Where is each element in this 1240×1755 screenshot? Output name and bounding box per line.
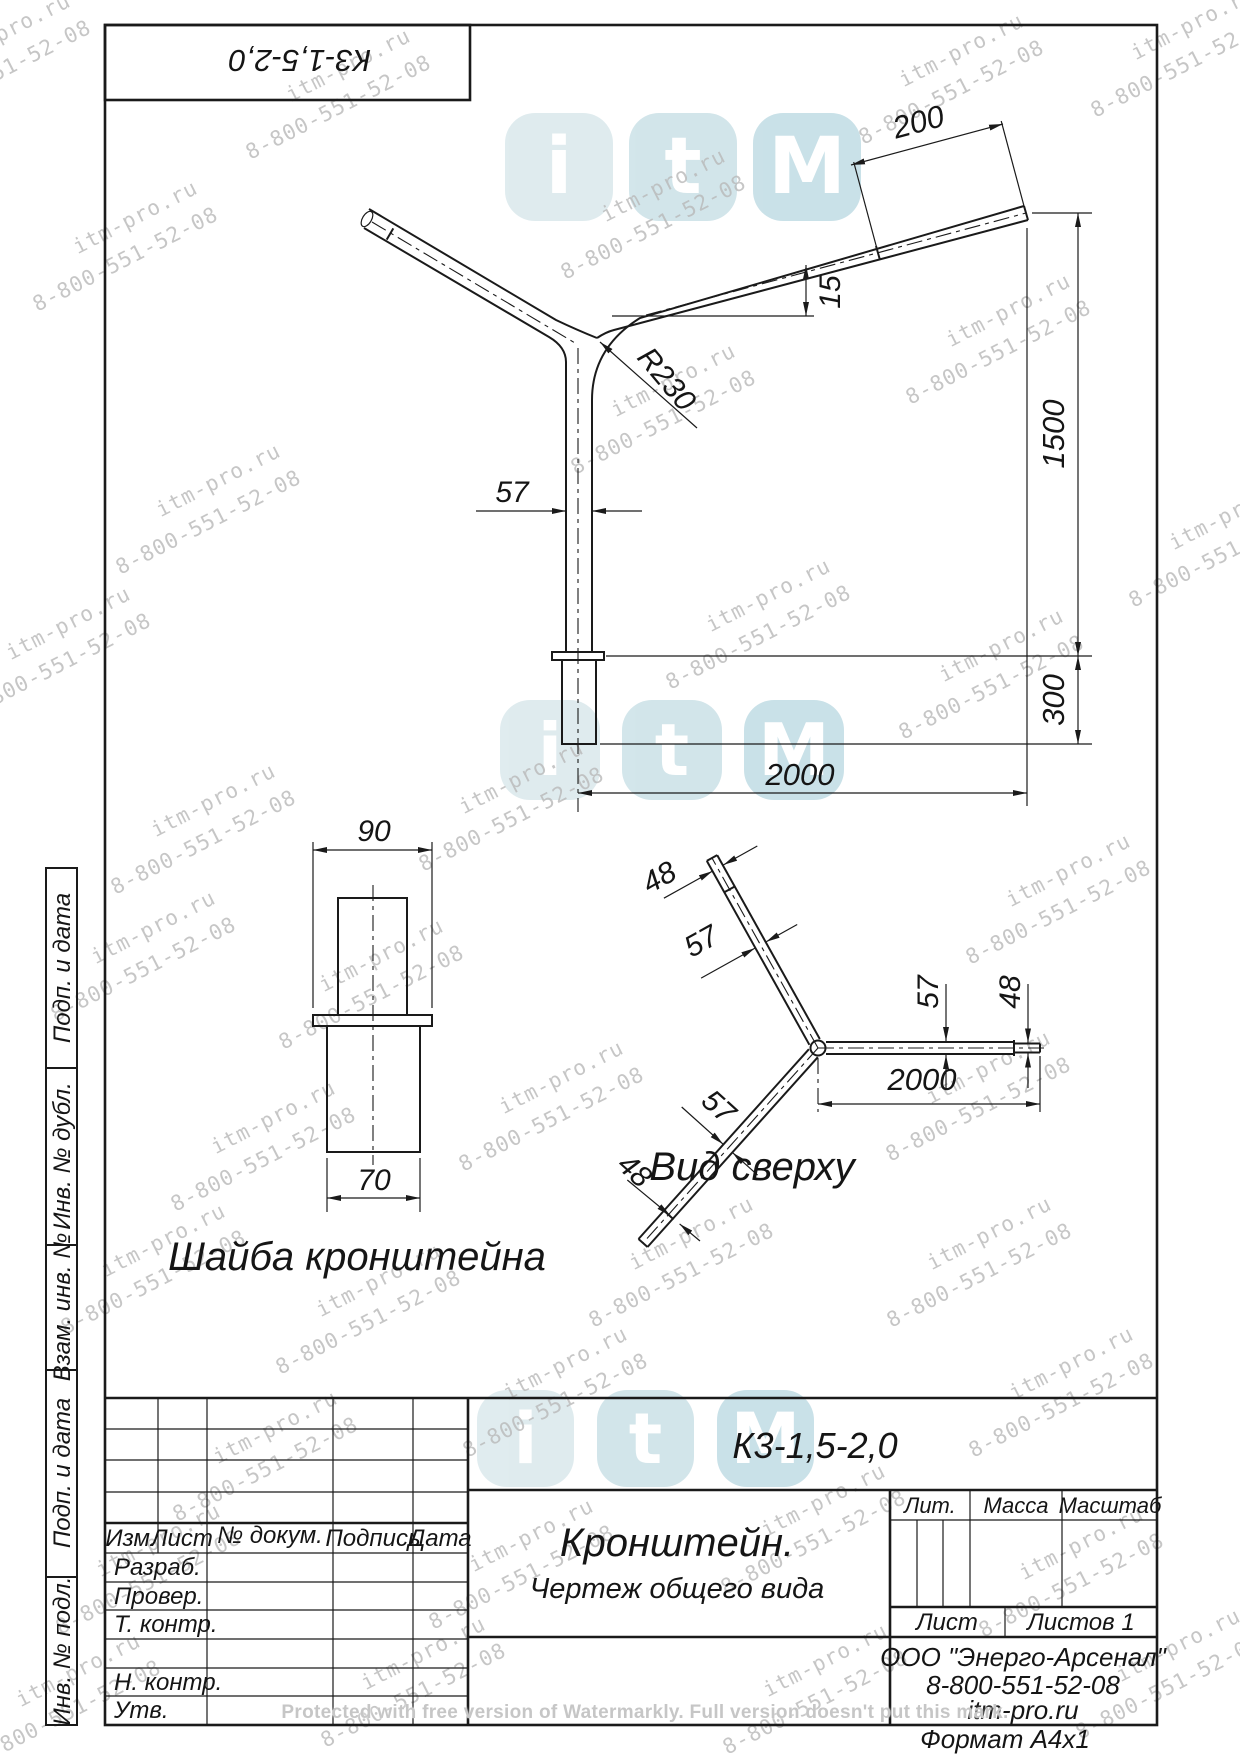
bracket-left-edge [364, 228, 566, 652]
top-view: 48 57 57 48 2000 57 48 Вид сверх [611, 846, 1046, 1247]
dim-1500: 1500 [1036, 400, 1071, 469]
corner-stamp-text: К3-1,5-2,0 [229, 43, 371, 78]
masshtab-label: Масштаб [1059, 1493, 1163, 1518]
list-label: Лист [914, 1609, 978, 1636]
washer-view: 90 70 Шайба кронштейна [168, 815, 546, 1279]
side-cell-label: Подп. и дата [49, 1398, 76, 1548]
corner-stamp: К3-1,5-2,0 [105, 25, 470, 100]
designation: К3-1,5-2,0 [732, 1425, 897, 1466]
dim-48-right: 48 [994, 975, 1027, 1009]
part-name: Кронштейн. [560, 1521, 794, 1565]
front-view: R230 200 15 1500 300 2000 57 [359, 98, 1092, 812]
top-view-caption: Вид сверху [649, 1145, 857, 1189]
bracket-right-arm-bottom-edge [597, 220, 1028, 338]
technical-drawing: К3-1,5-2,0 R230 20 [0, 0, 1240, 1755]
washer-caption: Шайба кронштейна [168, 1235, 546, 1279]
ext-line [854, 162, 877, 247]
dim-300: 300 [1036, 674, 1071, 726]
upper-arm [717, 855, 820, 1039]
listov-label: Листов 1 [1025, 1609, 1134, 1636]
dim-57-lower: 57 [695, 1084, 743, 1132]
dim-57-upper: 57 [679, 919, 725, 965]
company-name: ООО "Энерго-Арсенал" [880, 1642, 1167, 1672]
ext-line [1001, 121, 1024, 206]
left-arm-centerline [372, 222, 575, 343]
rev-col-podpis: Подпись [325, 1525, 420, 1552]
side-cell-label: Инв. № подл. [49, 1577, 76, 1726]
side-column: Подп. и дата Инв. № дубл. Взам. инв. № П… [46, 868, 77, 1725]
mounting-tube [562, 660, 596, 744]
rev-col-izm: Изм. [105, 1525, 156, 1552]
bracket-right-edge [592, 206, 1024, 652]
dim-2000: 2000 [765, 757, 835, 792]
title-block: Изм. Лист № докум. Подпись Дата Разраб. … [105, 1398, 1168, 1754]
format-label: Формат А4х1 [920, 1724, 1090, 1754]
sig-nkontr: Н. контр. [114, 1669, 222, 1696]
sig-prover: Провер. [114, 1583, 203, 1610]
watermarkly-notice: Protected with free version of Watermark… [140, 1702, 1150, 1724]
dim-57: 57 [495, 476, 530, 509]
rev-col-list: Лист [149, 1525, 213, 1552]
sheet-frame [105, 25, 1157, 1725]
dim-70: 70 [357, 1164, 391, 1197]
dim-90: 90 [357, 815, 391, 848]
rev-col-data: Дата [405, 1525, 471, 1552]
dim-line-48u [724, 846, 758, 865]
side-cell-label: Взам. инв. № [49, 1233, 76, 1381]
left-arm-pipe-end [359, 209, 375, 228]
drawing-type: Чертеж общего вида [530, 1573, 825, 1605]
dim-line-48l [680, 1224, 700, 1241]
dim-2000-top: 2000 [887, 1062, 957, 1097]
sig-tkontr: Т. контр. [114, 1611, 218, 1638]
side-cell-label: Подп. и дата [49, 893, 76, 1043]
upper-arm [707, 861, 810, 1045]
dim-15: 15 [814, 275, 847, 309]
sig-razrab: Разраб. [114, 1554, 201, 1581]
rev-col-dokum: № докум. [217, 1522, 323, 1549]
massa-label: Масса [983, 1493, 1048, 1518]
dim-line-57u [766, 925, 797, 942]
lit-label: Лит. [902, 1493, 956, 1518]
side-cell-label: Инв. № дубл. [49, 1082, 76, 1230]
dim-57-right: 57 [912, 974, 945, 1009]
dim-48-upper: 48 [637, 855, 682, 900]
dim-200: 200 [888, 98, 948, 145]
upper-arm-centerline [712, 858, 818, 1048]
bracket-left-arm-top-edge [369, 209, 597, 338]
drawing-sheet: itMitMitM itm-pro.ru8-800-551-52-08itm-p… [0, 0, 1240, 1755]
